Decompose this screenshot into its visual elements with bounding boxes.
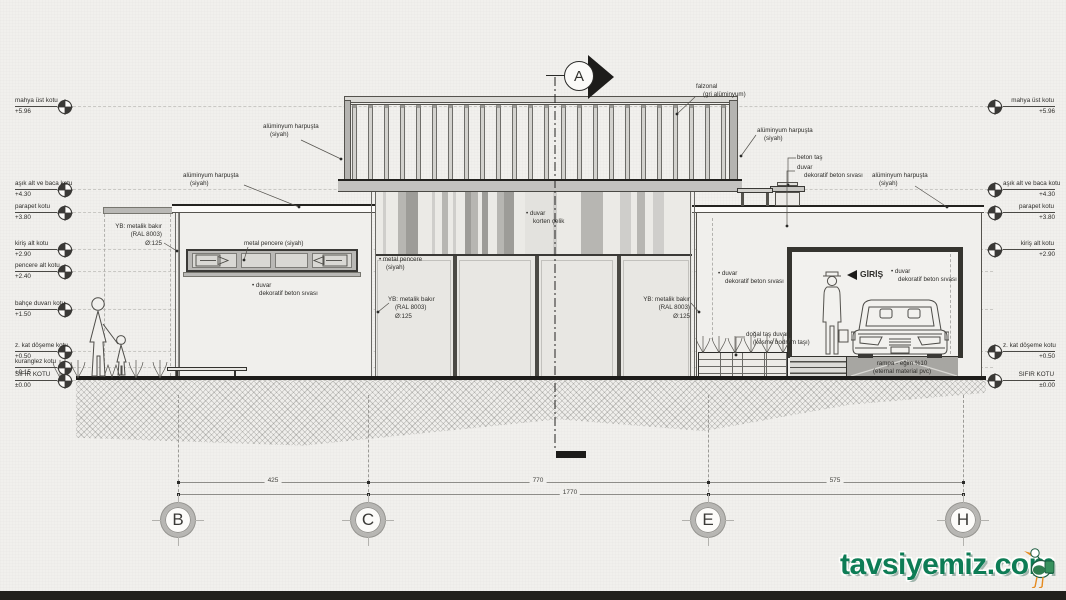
elevation-label: parapet kotu+3.80 bbox=[15, 203, 57, 222]
annotation-alum-harpusta-top-left: alüminyum harpuşta(siyah) bbox=[263, 123, 319, 140]
grid-bubble-C: C bbox=[351, 503, 385, 537]
elevation-label: kiriş alt kotu+2.90 bbox=[15, 240, 57, 259]
stone-wall bbox=[698, 352, 788, 377]
annotation-dogal-tas: doğal taş duvar(kesme bodrum taşı) bbox=[746, 331, 810, 348]
corten-stripe bbox=[653, 192, 664, 254]
section-marker-line bbox=[546, 75, 566, 76]
window-mullion bbox=[617, 256, 621, 379]
soil-hatch bbox=[76, 381, 986, 447]
railing-top-rail bbox=[344, 96, 738, 103]
left-building-roof bbox=[172, 204, 378, 213]
chimney-body bbox=[775, 192, 800, 206]
railing-baluster bbox=[512, 105, 517, 181]
railing-baluster bbox=[368, 105, 373, 181]
elevation-label: aşık alt ve baca kotu+4.30 bbox=[15, 180, 57, 199]
railing-baluster bbox=[625, 105, 630, 181]
grid-bubble-E: E bbox=[691, 503, 725, 537]
roof-fascia bbox=[338, 179, 742, 192]
dimension-total-value: 1770 bbox=[560, 490, 580, 497]
grid-bubble-tick bbox=[178, 494, 179, 503]
annotation-alum-harpusta-roof: alüminyum harpuşta(siyah) bbox=[757, 127, 813, 144]
corten-stripe bbox=[406, 192, 418, 254]
dimension-value: 770 bbox=[530, 478, 547, 485]
grid-bubble-B: B bbox=[161, 503, 195, 537]
corten-stripe bbox=[603, 192, 620, 254]
annotation-duvar-dekoratif-baca: duvardekoratif beton sıvası bbox=[797, 164, 863, 181]
grid-bubble-tick bbox=[152, 520, 161, 521]
railing-baluster bbox=[721, 105, 726, 181]
elevation-label: parapet kotu+3.80 bbox=[1003, 203, 1055, 222]
corten-stripe bbox=[645, 192, 653, 254]
elevation-marker-icon bbox=[987, 205, 1003, 221]
right-wall-guide-dashed bbox=[712, 218, 713, 340]
railing-baluster bbox=[432, 105, 437, 181]
chimney-top-plate bbox=[777, 182, 798, 186]
watermark-text: tavsiyemiz.com bbox=[840, 548, 1055, 581]
annotation-rampa: rampa - eğim %10(eternal material pvc) bbox=[873, 360, 931, 377]
railing-baluster bbox=[657, 105, 662, 181]
corten-stripe bbox=[620, 192, 631, 254]
grid-extension-line bbox=[368, 395, 369, 502]
railing-baluster bbox=[641, 105, 646, 181]
ground-line bbox=[76, 376, 986, 380]
elevation-marker-icon bbox=[57, 373, 73, 389]
annotation-duvar-dekoratif-left: • duvardekoratif beton sıvası bbox=[252, 282, 318, 299]
grid-bubble-tick bbox=[963, 537, 964, 546]
elevation-label: SIFIR KOTU±0.00 bbox=[15, 371, 57, 390]
railing-baluster bbox=[400, 105, 405, 181]
grid-extension-line bbox=[178, 395, 179, 502]
annotation-duvar-dekoratif-right: • duvardekoratif beton sıvası bbox=[891, 268, 957, 285]
dimension-tick-dot bbox=[962, 481, 965, 484]
annotation-yb-bakir-right: YB: metalik bakır(RAL 8003)Ø:125 bbox=[642, 296, 690, 321]
annotation-beton-tas: beton taş bbox=[797, 154, 822, 162]
elevation-marker-icon bbox=[987, 99, 1003, 115]
railing-baluster bbox=[705, 105, 710, 181]
grid-bubble-tick bbox=[937, 520, 946, 521]
elevation-label: mahya üst kotu+5.96 bbox=[1003, 97, 1055, 116]
window-mullion bbox=[453, 256, 457, 379]
railing-baluster bbox=[464, 105, 469, 181]
watermark-bird-icon bbox=[1024, 546, 1058, 588]
elevation-marker-icon bbox=[987, 242, 1003, 258]
car-front-view bbox=[851, 296, 949, 358]
railing-baluster bbox=[544, 105, 549, 181]
railing-baluster bbox=[496, 105, 501, 181]
annotation-yb-bakir-left: YB: metalik bakır(RAL 8003)Ø:125 bbox=[112, 223, 162, 248]
railing-baluster bbox=[480, 105, 485, 181]
elevation-marker-icon bbox=[57, 242, 73, 258]
grid-bubble-tick bbox=[342, 520, 351, 521]
window-slide-arrows-icon bbox=[188, 251, 356, 270]
window-pane bbox=[459, 260, 531, 377]
main-downspout-left bbox=[371, 192, 376, 377]
corten-stripe bbox=[435, 192, 442, 254]
corten-stripe bbox=[488, 192, 497, 254]
railing-end-post bbox=[344, 100, 351, 181]
elevation-label: bahçe duvarı kotu+1.50 bbox=[15, 300, 57, 319]
grid-bubble-tick bbox=[708, 537, 709, 546]
annotation-metal-pencere-left: metal pencere (siyah) bbox=[244, 240, 304, 248]
corten-stripe bbox=[504, 192, 514, 254]
grid-bubble-tick bbox=[195, 520, 204, 521]
annotation-alum-harpusta-left: alüminyum harpuşta(siyah) bbox=[183, 172, 239, 189]
section-marker-bubble: A bbox=[564, 61, 594, 91]
dimension-value: 575 bbox=[827, 478, 844, 485]
annotation-falzonal: falzonal(gri alüminyum) bbox=[696, 83, 746, 100]
railing-baluster bbox=[673, 105, 678, 181]
corten-stripe bbox=[386, 192, 398, 254]
corten-stripe bbox=[418, 192, 432, 254]
elevation-marker-icon bbox=[57, 205, 73, 221]
grid-extension-line bbox=[963, 395, 964, 502]
roof-coping-leg bbox=[741, 193, 744, 206]
annotation-duvar-korten: • duvarkorten çelik bbox=[526, 210, 564, 227]
railing-baluster bbox=[416, 105, 421, 181]
chimney-cap bbox=[770, 186, 805, 192]
grid-bubble-tick bbox=[385, 520, 394, 521]
grid-bubble-tick bbox=[725, 520, 734, 521]
railing-baluster bbox=[577, 105, 582, 181]
elevation-marker-icon bbox=[987, 373, 1003, 389]
corten-stripe bbox=[664, 192, 692, 254]
entrance-arrow-icon bbox=[847, 270, 857, 280]
dimension-tick-dot bbox=[707, 481, 710, 484]
ribbon-window bbox=[186, 249, 358, 272]
entrance-steps bbox=[790, 356, 846, 377]
grid-bubble-tick bbox=[963, 494, 964, 503]
grid-bubble-tick bbox=[980, 520, 989, 521]
dimension-tick-dot bbox=[367, 481, 370, 484]
railing-baluster bbox=[448, 105, 453, 181]
grid-bubble-tick bbox=[682, 520, 691, 521]
section-marker-letter: A bbox=[574, 68, 584, 85]
dimension-value: 425 bbox=[265, 478, 282, 485]
grid-bubble-tick bbox=[708, 494, 709, 503]
grid-bubble-tick bbox=[368, 537, 369, 546]
elevation-label: kiriş alt kotu+2.90 bbox=[1003, 240, 1055, 259]
railing-end-post bbox=[729, 100, 738, 181]
annotation-giris: GİRİŞ bbox=[860, 269, 883, 280]
architectural-elevation-drawing: A tavsiyemiz.com mahya üst kotu+5.96aşık… bbox=[0, 0, 1066, 600]
annotation-alum-harpusta-right: alüminyum harpuşta(siyah) bbox=[872, 172, 928, 189]
railing-baluster bbox=[528, 105, 533, 181]
corten-stripe bbox=[456, 192, 465, 254]
right-building-roof bbox=[692, 205, 984, 213]
annotation-metal-pencere-mid: • metal pencere(siyah) bbox=[379, 256, 422, 273]
corten-stripe bbox=[398, 192, 406, 254]
window-sill bbox=[183, 272, 361, 277]
grid-bubble-H: H bbox=[946, 503, 980, 537]
corten-stripe bbox=[637, 192, 645, 254]
elevation-marker-icon bbox=[987, 182, 1003, 198]
window-pane bbox=[541, 260, 613, 377]
roof-railing bbox=[344, 96, 738, 181]
garden-canopy-slab bbox=[103, 207, 173, 214]
railing-baluster bbox=[352, 105, 357, 181]
railing-baluster bbox=[609, 105, 614, 181]
bottom-border-bar bbox=[0, 591, 1066, 600]
elevation-label: aşık alt ve baca kotu+4.30 bbox=[1003, 180, 1055, 199]
corten-stripe bbox=[581, 192, 603, 254]
railing-baluster bbox=[561, 105, 566, 181]
elevation-marker-icon bbox=[987, 344, 1003, 360]
elevation-label: mahya üst kotu+5.96 bbox=[15, 97, 57, 116]
elevation-label: z. kat döşeme kotu+0.50 bbox=[1003, 342, 1055, 361]
annotation-duvar-dekoratif-mid: • duvardekoratif beton sıvası bbox=[718, 270, 784, 287]
roof-coping-leg bbox=[766, 193, 769, 206]
corten-stripe bbox=[497, 192, 504, 254]
corten-stripe bbox=[514, 192, 525, 254]
window-mullion bbox=[535, 256, 539, 379]
elevation-marker-icon bbox=[57, 99, 73, 115]
grid-extension-line bbox=[708, 395, 709, 502]
grid-bubble-tick bbox=[368, 494, 369, 503]
dimension-tick-dot bbox=[177, 481, 180, 484]
watermark[interactable]: tavsiyemiz.com bbox=[840, 548, 1055, 582]
dimension-line bbox=[178, 482, 963, 483]
railing-baluster bbox=[593, 105, 598, 181]
grid-bubble-tick bbox=[178, 537, 179, 546]
railing-baluster bbox=[384, 105, 389, 181]
man-silhouette bbox=[815, 270, 849, 358]
corten-stripe bbox=[471, 192, 478, 254]
elevation-label: SIFIR KOTU±0.00 bbox=[1003, 371, 1055, 390]
annotation-yb-bakir-mid: YB: metalik bakır(RAL 8003)Ø:125 bbox=[388, 296, 435, 321]
elevation-label: pencere alt kotu+2.40 bbox=[15, 262, 57, 281]
railing-baluster bbox=[689, 105, 694, 181]
level-dashed-line bbox=[73, 380, 993, 381]
corten-stripe bbox=[375, 192, 383, 254]
